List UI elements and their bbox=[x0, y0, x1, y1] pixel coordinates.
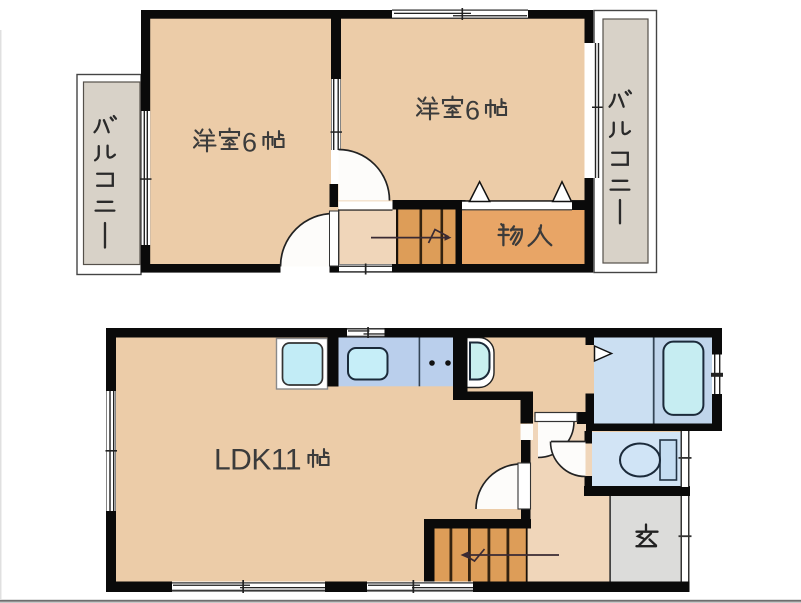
svg-text:6: 6 bbox=[465, 96, 480, 126]
svg-text:6: 6 bbox=[242, 128, 257, 158]
svg-text:LDK11: LDK11 bbox=[214, 444, 301, 477]
